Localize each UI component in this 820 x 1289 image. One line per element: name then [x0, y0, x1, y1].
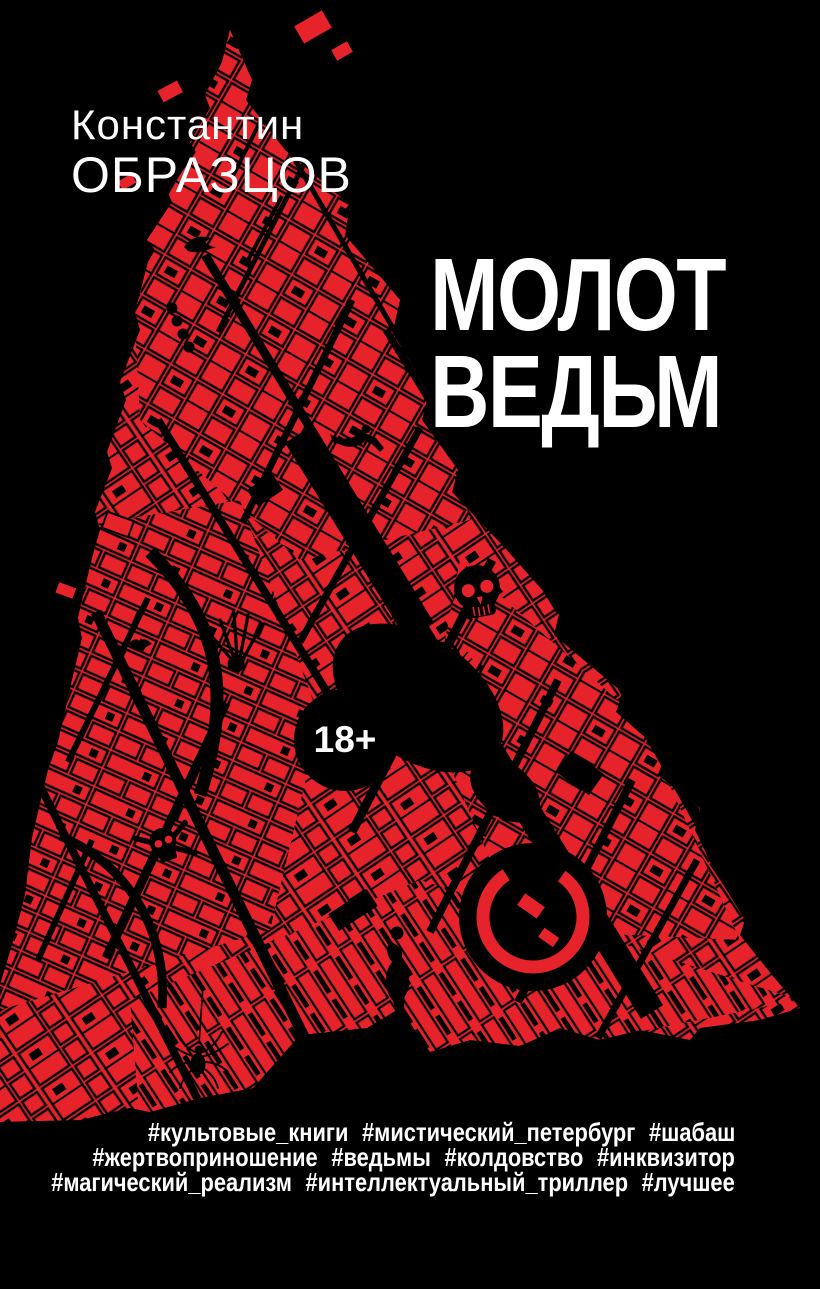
age-restriction-badge: 18+	[314, 719, 377, 761]
hashtag-line-3: #магический_реализм #интеллектуальный_тр…	[51, 1170, 735, 1195]
hashtag-block: #культовые_книги #мистический_петербург …	[0, 1120, 735, 1195]
title-line-2: ВЕДЬМ	[430, 343, 721, 440]
book-cover: Константин ОБРАЗЦОВ МОЛОТ ВЕДЬМ 18+ #кул…	[0, 0, 820, 1289]
author-last-name: ОБРАЗЦОВ	[71, 150, 352, 200]
author-name: Константин ОБРАЗЦОВ	[71, 104, 352, 200]
book-title: МОЛОТ ВЕДЬМ	[430, 246, 799, 440]
title-line-1: МОЛОТ	[430, 246, 725, 343]
ring-road	[459, 843, 607, 991]
author-first-name: Константин	[71, 104, 352, 146]
